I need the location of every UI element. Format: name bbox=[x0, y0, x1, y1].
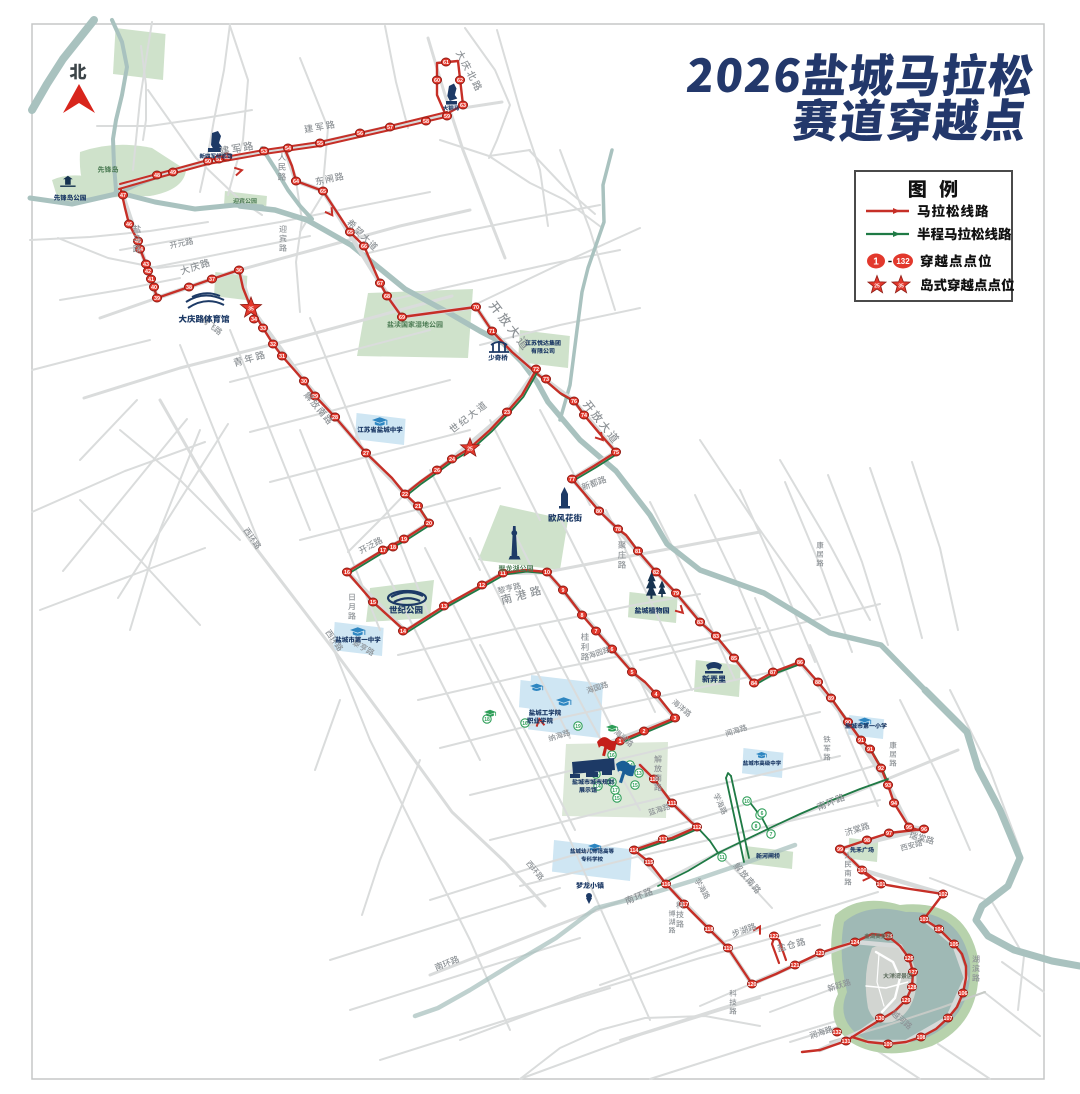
svg-text:128: 128 bbox=[908, 985, 917, 991]
svg-text:70: 70 bbox=[473, 305, 479, 311]
svg-text:7: 7 bbox=[770, 832, 773, 838]
svg-text:25: 25 bbox=[467, 447, 473, 453]
svg-text:10: 10 bbox=[544, 570, 550, 576]
svg-text:96: 96 bbox=[921, 827, 927, 833]
svg-text:88: 88 bbox=[815, 680, 821, 686]
svg-text:105: 105 bbox=[950, 942, 959, 948]
svg-text:91: 91 bbox=[858, 738, 864, 744]
svg-text:55: 55 bbox=[317, 141, 323, 147]
svg-text:42: 42 bbox=[145, 269, 151, 275]
svg-text:13: 13 bbox=[636, 771, 642, 777]
svg-text:109: 109 bbox=[884, 1042, 893, 1048]
svg-text:7: 7 bbox=[595, 629, 598, 635]
svg-text:99: 99 bbox=[837, 847, 843, 853]
svg-text:20: 20 bbox=[426, 521, 432, 527]
svg-text:8: 8 bbox=[581, 613, 584, 619]
svg-text:15: 15 bbox=[614, 796, 620, 802]
svg-text:1: 1 bbox=[873, 257, 879, 268]
svg-text:83: 83 bbox=[713, 634, 719, 640]
svg-text:58: 58 bbox=[423, 119, 429, 125]
svg-text:98: 98 bbox=[864, 838, 870, 844]
svg-text:64: 64 bbox=[293, 179, 299, 185]
svg-text:91: 91 bbox=[867, 747, 873, 753]
svg-text:15: 15 bbox=[632, 783, 638, 789]
svg-text:65: 65 bbox=[320, 189, 326, 195]
svg-text:121: 121 bbox=[791, 963, 800, 969]
svg-text:17: 17 bbox=[612, 788, 618, 794]
svg-text:69: 69 bbox=[399, 315, 405, 321]
svg-text:27: 27 bbox=[363, 451, 369, 457]
svg-text:130: 130 bbox=[876, 1016, 885, 1022]
svg-text:22: 22 bbox=[402, 492, 408, 498]
svg-text:95: 95 bbox=[906, 825, 912, 831]
svg-text:10: 10 bbox=[744, 799, 750, 805]
svg-text:61: 61 bbox=[443, 60, 449, 66]
svg-text:72: 72 bbox=[533, 367, 539, 373]
svg-text:1: 1 bbox=[619, 739, 622, 745]
svg-text:16: 16 bbox=[609, 753, 615, 759]
svg-text:86: 86 bbox=[797, 660, 803, 666]
svg-text:40: 40 bbox=[151, 285, 157, 291]
svg-text:25: 25 bbox=[874, 284, 880, 290]
svg-text:94: 94 bbox=[891, 801, 897, 807]
svg-text:101: 101 bbox=[877, 882, 886, 888]
svg-text:120: 120 bbox=[748, 982, 757, 988]
svg-text:87: 87 bbox=[770, 670, 776, 676]
svg-text:21: 21 bbox=[415, 504, 421, 510]
svg-text:9: 9 bbox=[562, 588, 565, 594]
svg-text:13: 13 bbox=[441, 604, 447, 610]
svg-text:78: 78 bbox=[615, 527, 621, 533]
svg-text:93: 93 bbox=[885, 783, 891, 789]
svg-text:60: 60 bbox=[434, 78, 440, 84]
svg-text:107: 107 bbox=[944, 1016, 953, 1022]
svg-text:39: 39 bbox=[154, 296, 160, 302]
svg-text:62: 62 bbox=[457, 78, 463, 84]
svg-text:35: 35 bbox=[248, 307, 254, 313]
svg-text:17: 17 bbox=[380, 548, 386, 554]
svg-text:5: 5 bbox=[631, 670, 634, 676]
svg-text:97: 97 bbox=[886, 831, 892, 837]
svg-text:108: 108 bbox=[917, 1035, 926, 1041]
svg-text:28: 28 bbox=[332, 415, 338, 421]
svg-text:122: 122 bbox=[770, 934, 779, 940]
svg-text:43: 43 bbox=[143, 262, 149, 268]
svg-text:50: 50 bbox=[205, 159, 211, 165]
svg-text:6: 6 bbox=[611, 647, 614, 653]
svg-text:31: 31 bbox=[279, 354, 285, 360]
svg-text:114: 114 bbox=[630, 848, 639, 854]
svg-text:116: 116 bbox=[662, 882, 671, 888]
svg-text:30: 30 bbox=[301, 379, 307, 385]
svg-text:84: 84 bbox=[751, 681, 757, 687]
svg-text:132: 132 bbox=[896, 257, 910, 266]
svg-text:104: 104 bbox=[935, 927, 944, 933]
svg-text:38: 38 bbox=[186, 285, 192, 291]
svg-text:33: 33 bbox=[260, 326, 266, 332]
svg-text:74: 74 bbox=[581, 413, 587, 419]
svg-text:80: 80 bbox=[596, 509, 602, 515]
svg-text:103: 103 bbox=[920, 917, 929, 923]
svg-text:56: 56 bbox=[357, 131, 363, 137]
svg-text:126: 126 bbox=[905, 956, 914, 962]
svg-text:15: 15 bbox=[370, 600, 376, 606]
svg-text:102: 102 bbox=[939, 892, 948, 898]
svg-text:124: 124 bbox=[851, 940, 860, 946]
svg-text:19: 19 bbox=[401, 537, 407, 543]
svg-text:41: 41 bbox=[148, 277, 154, 283]
svg-text:47: 47 bbox=[120, 193, 126, 199]
svg-text:112: 112 bbox=[693, 825, 702, 831]
svg-text:11: 11 bbox=[500, 571, 506, 577]
svg-text:129: 129 bbox=[902, 998, 911, 1004]
svg-text:18: 18 bbox=[390, 545, 396, 551]
svg-text:49: 49 bbox=[170, 170, 176, 176]
svg-text:24: 24 bbox=[449, 457, 455, 463]
svg-text:2: 2 bbox=[643, 729, 646, 735]
svg-text:16: 16 bbox=[522, 721, 528, 727]
svg-text:18: 18 bbox=[484, 717, 490, 723]
svg-text:36: 36 bbox=[236, 268, 242, 274]
svg-text:14: 14 bbox=[400, 629, 406, 635]
svg-text:73: 73 bbox=[543, 377, 549, 383]
svg-text:82: 82 bbox=[653, 570, 659, 576]
svg-text:11: 11 bbox=[719, 855, 725, 861]
svg-text:81: 81 bbox=[635, 549, 641, 555]
svg-text:67: 67 bbox=[377, 281, 383, 287]
svg-text:119: 119 bbox=[724, 946, 733, 952]
svg-text:76: 76 bbox=[571, 399, 577, 405]
svg-text:123: 123 bbox=[816, 951, 825, 957]
svg-text:77: 77 bbox=[569, 477, 575, 483]
svg-text:32: 32 bbox=[270, 342, 276, 348]
svg-text:54: 54 bbox=[285, 146, 291, 152]
svg-text:3: 3 bbox=[674, 716, 677, 722]
svg-text:37: 37 bbox=[209, 277, 215, 283]
svg-text:4: 4 bbox=[655, 692, 658, 698]
svg-text:59: 59 bbox=[444, 114, 450, 120]
svg-text:53: 53 bbox=[261, 149, 267, 155]
svg-text:66: 66 bbox=[361, 244, 367, 250]
svg-text:16: 16 bbox=[344, 570, 350, 576]
svg-text:48: 48 bbox=[154, 173, 160, 179]
svg-text:85: 85 bbox=[731, 656, 737, 662]
svg-text:83: 83 bbox=[697, 620, 703, 626]
svg-text:111: 111 bbox=[668, 801, 676, 807]
svg-text:57: 57 bbox=[387, 125, 393, 131]
svg-text:131: 131 bbox=[842, 1039, 851, 1045]
svg-text:26: 26 bbox=[434, 468, 440, 474]
svg-text:106: 106 bbox=[959, 991, 968, 997]
svg-text:23: 23 bbox=[504, 410, 510, 416]
svg-text:63: 63 bbox=[460, 103, 466, 109]
svg-text:29: 29 bbox=[312, 394, 318, 400]
svg-text:71: 71 bbox=[489, 329, 495, 335]
svg-text:34: 34 bbox=[251, 317, 257, 323]
svg-text:118: 118 bbox=[705, 927, 714, 933]
svg-text:79: 79 bbox=[673, 591, 679, 597]
svg-text:75: 75 bbox=[613, 450, 619, 456]
svg-text:132: 132 bbox=[833, 1030, 842, 1036]
svg-text:46: 46 bbox=[126, 222, 132, 228]
svg-text:35: 35 bbox=[898, 284, 904, 290]
svg-text:19: 19 bbox=[575, 724, 581, 730]
svg-text:92: 92 bbox=[878, 766, 884, 772]
svg-text:65: 65 bbox=[347, 230, 353, 236]
svg-text:89: 89 bbox=[828, 696, 834, 702]
svg-text:113: 113 bbox=[659, 837, 668, 843]
svg-text:12: 12 bbox=[479, 583, 485, 589]
svg-text:115: 115 bbox=[645, 860, 654, 866]
svg-text:8: 8 bbox=[755, 824, 758, 830]
svg-text:6: 6 bbox=[761, 811, 764, 817]
svg-text:68: 68 bbox=[384, 294, 390, 300]
